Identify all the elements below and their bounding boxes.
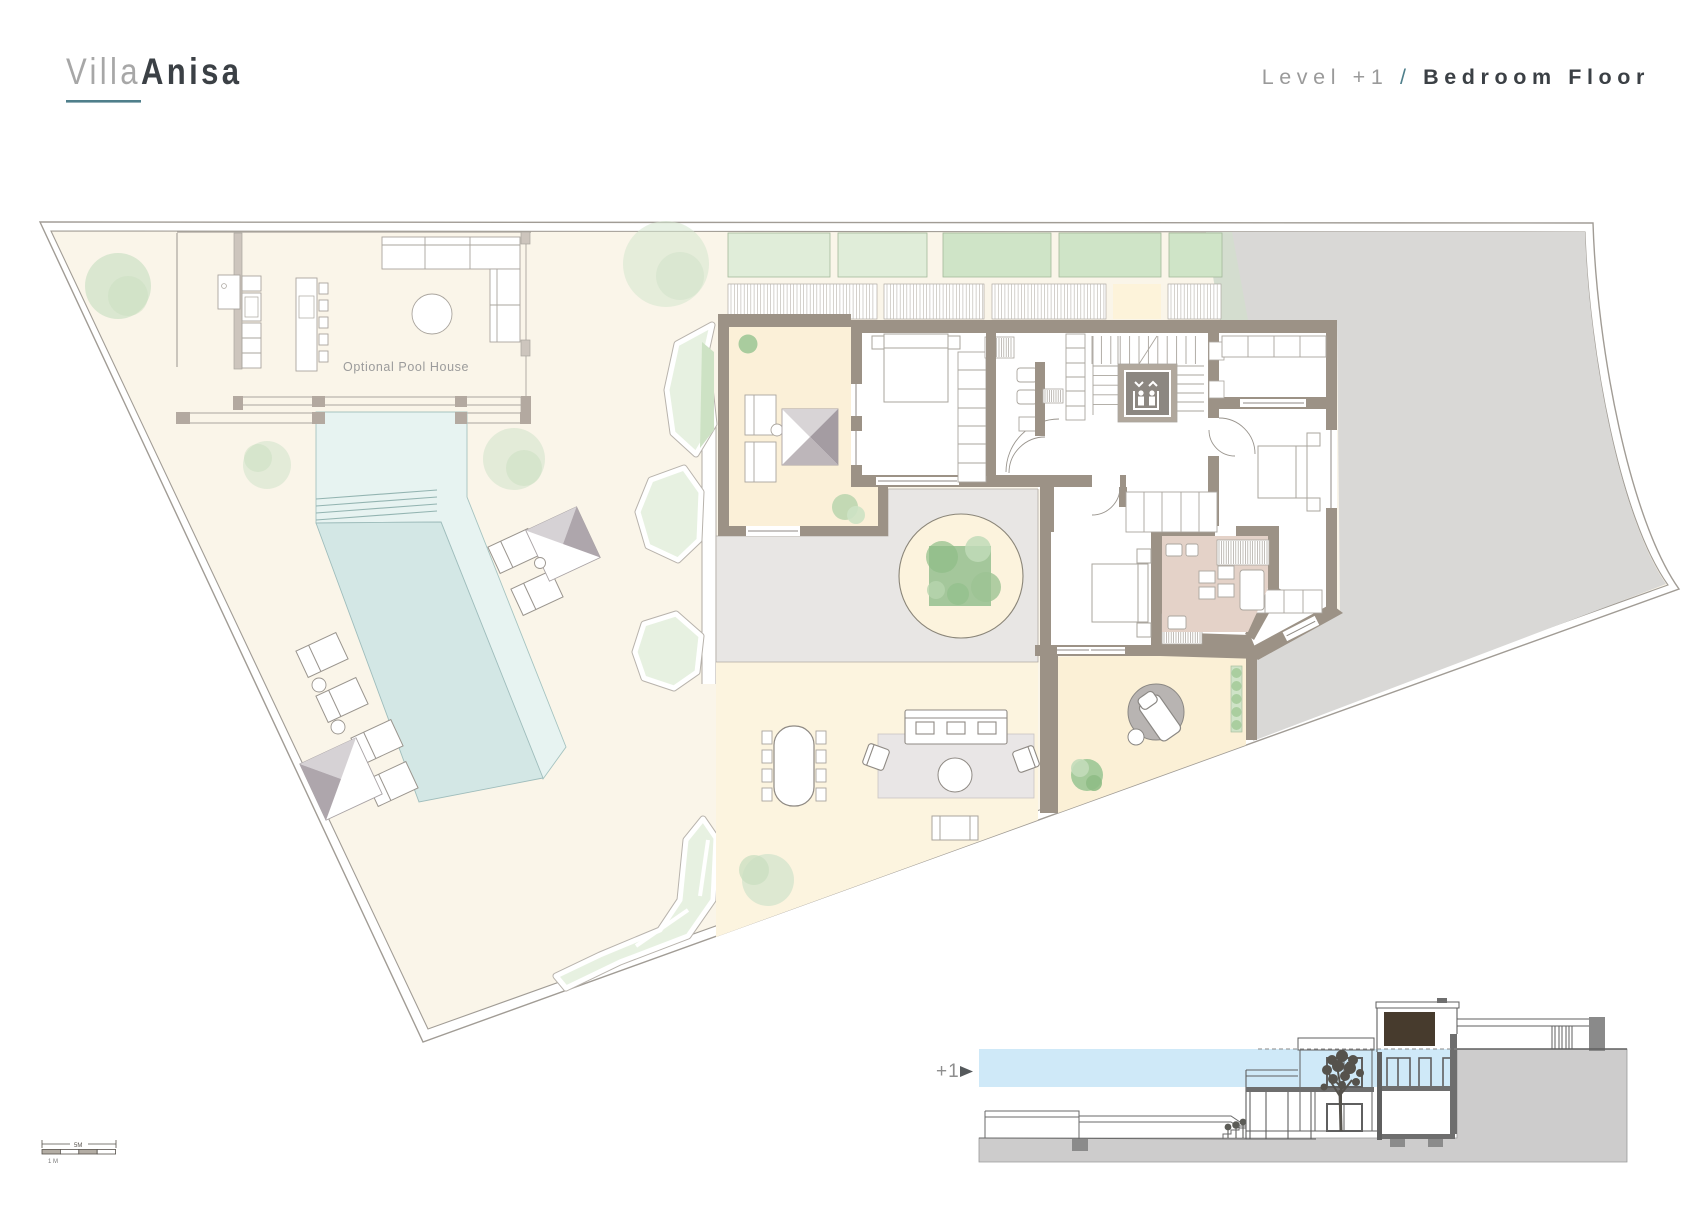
svg-text:5M: 5M bbox=[74, 1143, 82, 1149]
svg-text:1 M: 1 M bbox=[48, 1159, 58, 1165]
svg-text:VillaAnisa: VillaAnisa bbox=[66, 52, 242, 93]
svg-text:Level +1 / Bedroom Floor: Level +1 / Bedroom Floor bbox=[1262, 65, 1650, 89]
svg-text:+1: +1 bbox=[936, 1061, 960, 1082]
svg-text:Optional Pool House: Optional Pool House bbox=[343, 360, 469, 374]
